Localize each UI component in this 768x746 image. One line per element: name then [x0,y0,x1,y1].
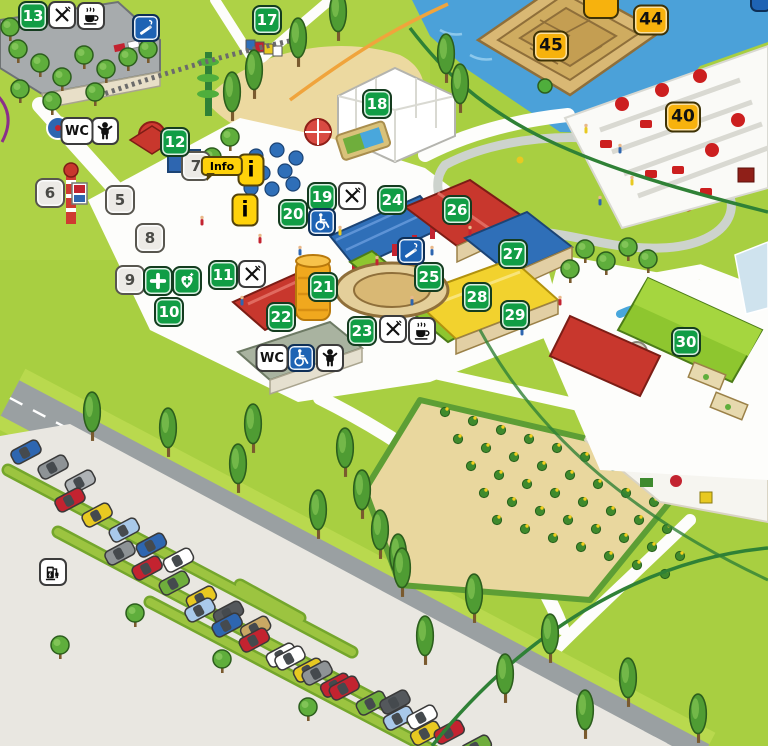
ev-charging-icon[interactable] [39,558,67,586]
restaurant-icon[interactable] [48,1,76,29]
marker-45[interactable]: 45 [533,31,569,62]
marker-18[interactable]: 18 [362,89,392,119]
marker-5[interactable]: 5 [105,185,135,215]
marker-6[interactable]: 6 [35,178,65,208]
marker-layer: 5678910111213171819202122232425262728293… [0,0,768,746]
restaurant-icon[interactable] [338,182,366,210]
info-sign[interactable]: Info [201,156,243,176]
restaurant-icon[interactable] [238,260,266,288]
marker-22[interactable]: 22 [266,302,296,332]
truncated-blue-badge[interactable] [750,0,768,12]
first-aid-icon[interactable] [143,266,173,296]
marker-25[interactable]: 25 [414,262,444,292]
smoking-area-icon[interactable] [397,237,425,265]
marker-30[interactable]: 30 [671,327,701,357]
marker-21[interactable]: 21 [308,272,338,302]
defibrillator-icon[interactable] [172,266,202,296]
marker-24[interactable]: 24 [377,185,407,215]
marker-44[interactable]: 44 [633,5,669,36]
marker-29[interactable]: 29 [500,300,530,330]
baby-care-icon[interactable] [316,344,344,372]
marker-11[interactable]: 11 [208,260,238,290]
wheelchair-icon[interactable] [287,344,315,372]
marker-8[interactable]: 8 [135,223,165,253]
baby-care-icon[interactable] [91,117,119,145]
smoking-area-icon[interactable] [132,14,160,42]
marker-17[interactable]: 17 [252,5,282,35]
cafe-icon[interactable] [77,2,105,30]
marker-23[interactable]: 23 [347,316,377,346]
wc-badge[interactable]: WC [61,117,94,145]
marker-12[interactable]: 12 [160,127,190,157]
marker-26[interactable]: 26 [442,195,472,225]
marker-9[interactable]: 9 [115,265,145,295]
marker-28[interactable]: 28 [462,282,492,312]
marker-20[interactable]: 20 [278,199,308,229]
restaurant-icon[interactable] [379,315,407,343]
cafe-icon[interactable] [408,317,436,345]
park-map: 5678910111213171819202122232425262728293… [0,0,768,746]
marker-10[interactable]: 10 [154,297,184,327]
truncated-yellow-badge[interactable] [583,0,619,19]
marker-27[interactable]: 27 [498,239,528,269]
wheelchair-icon[interactable] [308,208,336,236]
marker-40[interactable]: 40 [665,102,701,133]
wc-badge[interactable]: WC [256,344,289,372]
information-badge[interactable]: i [232,194,259,227]
marker-13[interactable]: 13 [18,1,48,31]
